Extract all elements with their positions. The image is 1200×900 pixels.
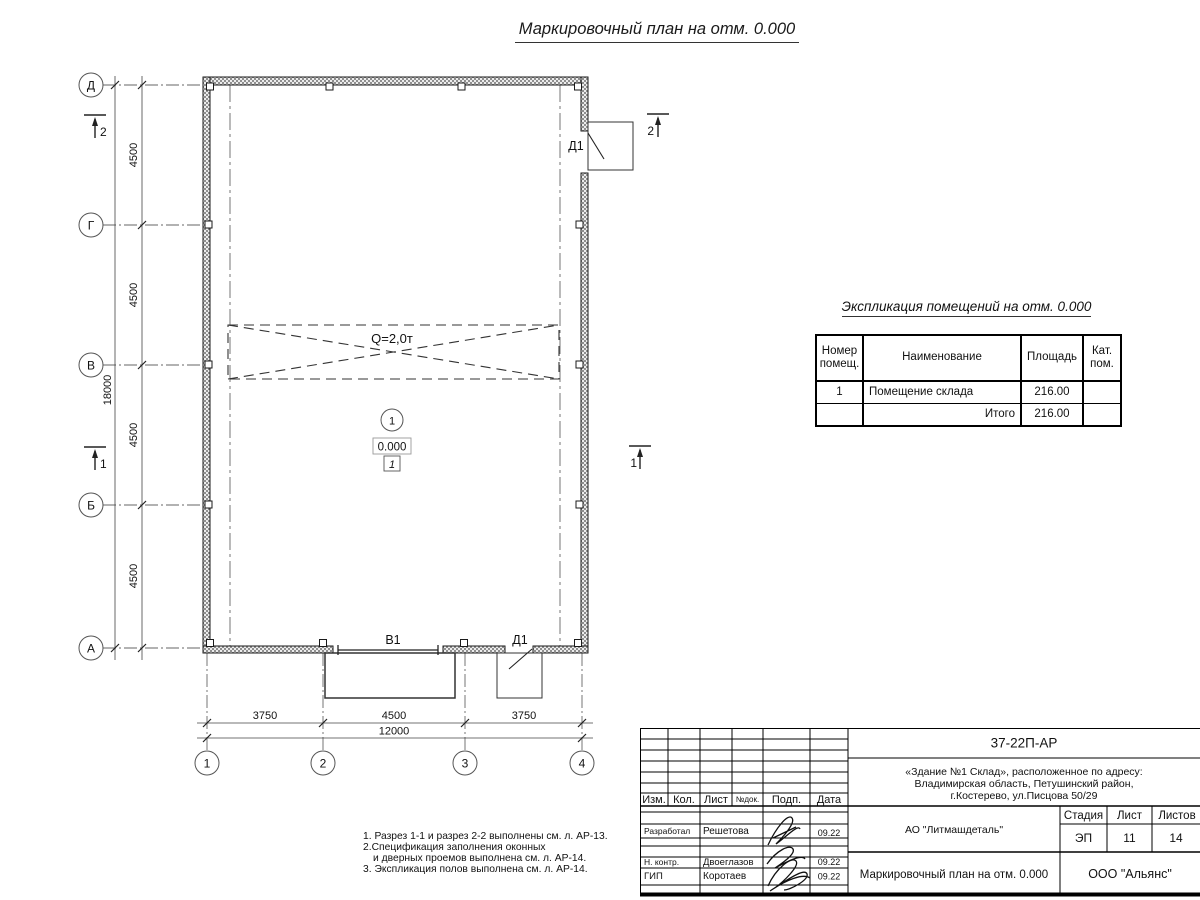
header-izm: Изм. (642, 794, 666, 806)
date-norm-control: 09.22 (818, 857, 841, 867)
elevation-mark: 0.000 (378, 442, 407, 454)
note-2-continued: и дверных проемов выполнена см. л. АР-14… (373, 853, 608, 864)
svg-text:18000: 18000 (102, 375, 114, 406)
floor-plan: Q=2,0т Д1 В1 Д1 1 0.000 1 2 1 2 (0, 0, 720, 800)
svg-text:Б: Б (87, 499, 95, 513)
room-marker: 1 0.000 1 (373, 409, 411, 471)
header-podp: Подп. (772, 794, 801, 806)
role-gip: ГИП (644, 871, 663, 882)
section-left-mid-number: 1 (100, 457, 107, 471)
svg-text:В: В (87, 359, 95, 373)
note-1: 1. Разрез 1-1 и разрез 2-2 выполнены см.… (363, 831, 608, 842)
explication-title-text: Экспликация помещений на отм. 0.000 (842, 299, 1092, 317)
svg-text:4500: 4500 (128, 283, 140, 307)
date-gip: 09.22 (818, 872, 841, 882)
crane-rail-axes (230, 85, 560, 647)
name-developer: Решетова (703, 826, 749, 837)
date-developer: 09.22 (818, 828, 841, 838)
stage-header: Стадия (1064, 810, 1103, 822)
gate-label: В1 (385, 633, 400, 647)
project-address-line2: Владимирская область, Петушинский район, (914, 778, 1133, 790)
sheet-header: Лист (1117, 810, 1143, 822)
col-header-name: Наименование (864, 336, 1022, 382)
sheets-header: Листов (1158, 810, 1195, 822)
signature-norm-control (767, 847, 805, 868)
role-norm-control: Н. контр. (644, 857, 679, 867)
svg-text:3750: 3750 (253, 710, 277, 722)
crane-capacity-label: Q=2,0т (371, 331, 413, 346)
walls (203, 77, 588, 653)
project-address-line3: г.Костерево, ул.Писцова 50/29 (951, 790, 1098, 802)
room-row-number: 1 (817, 382, 864, 404)
col-header-room-number: Номер помещ. (817, 336, 864, 382)
pilasters (205, 83, 583, 647)
floor-type-mark: 1 (389, 459, 395, 471)
svg-text:Г: Г (88, 219, 95, 233)
section-left-top-number: 2 (100, 125, 107, 139)
header-list: Лист (704, 794, 728, 806)
svg-text:1: 1 (204, 757, 211, 771)
explication-title: Экспликация помещений на отм. 0.000 (813, 299, 1120, 317)
col-header-category: Кат. пом. (1084, 336, 1120, 382)
svg-text:2: 2 (320, 757, 327, 771)
door-top-label: Д1 (568, 139, 583, 153)
signature-gip (768, 860, 810, 891)
col-header-area: Площадь (1022, 336, 1084, 382)
gate-ramp (325, 653, 455, 698)
change-table-headers: Изм. Кол. Лист №док. Подп. Дата (642, 794, 842, 806)
door-bottom-label: Д1 (512, 633, 527, 647)
note-3: 3. Экспликация полов выполнена см. л. АР… (363, 864, 608, 875)
room-row-category (1084, 382, 1120, 404)
svg-text:4500: 4500 (128, 564, 140, 588)
total-category-empty (1084, 404, 1120, 425)
name-gip: Коротаев (703, 871, 746, 882)
total-row-empty (817, 404, 864, 425)
svg-text:4: 4 (579, 757, 586, 771)
notes-list: 1. Разрез 1-1 и разрез 2-2 выполнены см.… (363, 831, 608, 875)
sheet-value: 11 (1123, 831, 1136, 845)
axis-lines (103, 85, 582, 751)
section-right-top-number: 2 (647, 124, 654, 138)
company-name: АО "Литмашдеталь" (905, 824, 1003, 836)
svg-text:4500: 4500 (382, 710, 406, 722)
signature-developer (768, 817, 800, 845)
porch-top-right (588, 122, 633, 170)
explication-table: Номер помещ. Наименование Площадь Кат. п… (815, 334, 1122, 427)
svg-text:Д: Д (87, 79, 95, 93)
total-area: 216.00 (1022, 404, 1084, 425)
project-address-line1: «Здание №1 Склад», расположенное по адре… (905, 766, 1142, 778)
title-block: Изм. Кол. Лист №док. Подп. Дата Разработ… (640, 728, 1200, 900)
room-number: 1 (389, 416, 395, 428)
section-right-mid-number: 1 (630, 456, 637, 470)
header-data: Дата (817, 794, 842, 806)
drawing-name: Маркировочный план на отм. 0.000 (860, 869, 1048, 881)
note-2: 2.Спецификация заполнения оконных (363, 842, 608, 853)
svg-text:4500: 4500 (128, 423, 140, 447)
room-row-area: 216.00 (1022, 382, 1084, 404)
stage-value: ЭП (1075, 831, 1092, 845)
sheets-value: 14 (1169, 831, 1183, 845)
svg-text:4500: 4500 (128, 143, 140, 167)
role-developer: Разработал (644, 826, 690, 836)
room-row-name: Помещение склада (864, 382, 1022, 404)
svg-text:А: А (87, 642, 95, 656)
document-code: 37-22П-АР (991, 736, 1058, 751)
staff-rows: Разработал Решетова 09.22 Н. контр. Двое… (644, 826, 840, 882)
svg-text:3750: 3750 (512, 710, 536, 722)
signatures (767, 817, 810, 891)
svg-text:3: 3 (462, 757, 469, 771)
header-ndok: №док. (736, 795, 759, 804)
door-leaves (509, 133, 604, 669)
stamp-right-part: 37-22П-АР «Здание №1 Склад», расположенн… (860, 736, 1196, 882)
header-kol: Кол. (673, 794, 695, 806)
organization-name: ООО "Альянс" (1088, 867, 1172, 881)
total-label: Итого (864, 404, 1022, 425)
svg-text:12000: 12000 (379, 726, 410, 738)
name-norm-control: Двоеглазов (703, 857, 754, 868)
